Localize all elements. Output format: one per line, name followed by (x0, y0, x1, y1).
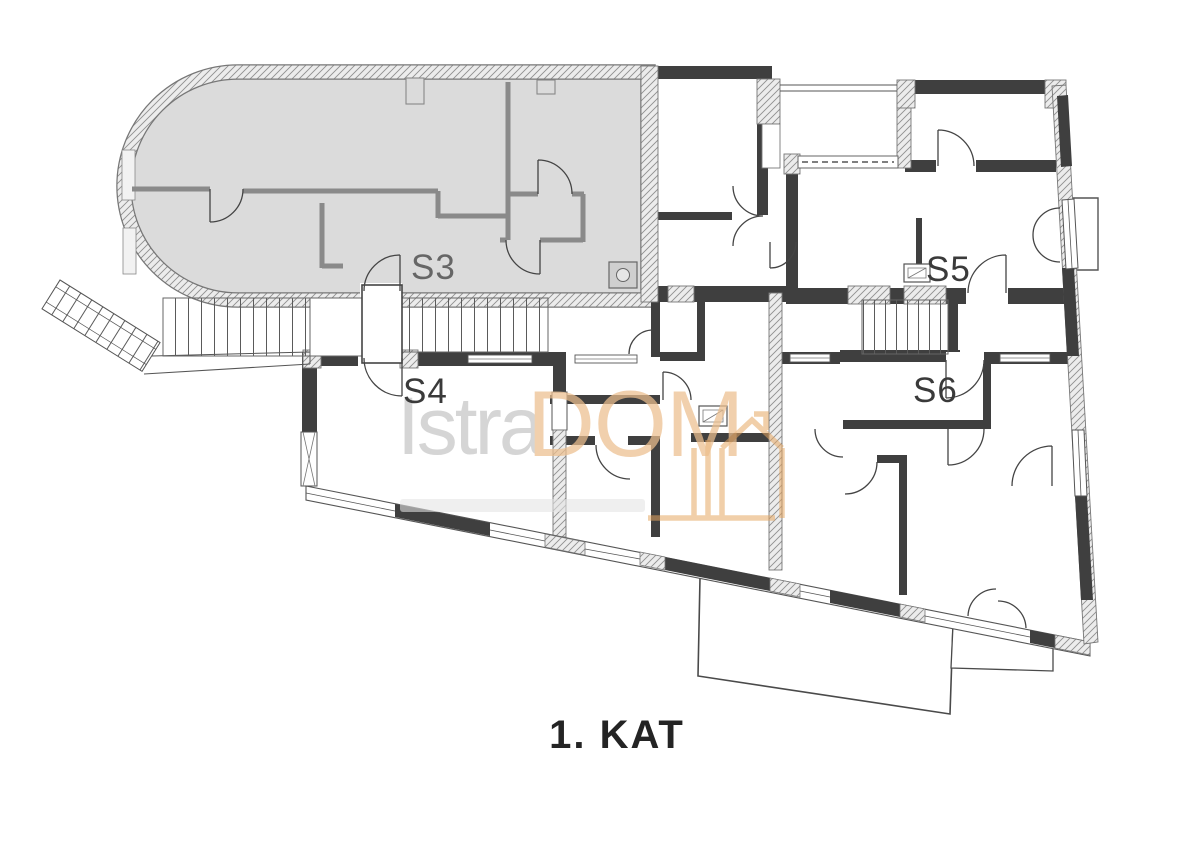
unit-label-s3: S3 (411, 248, 456, 287)
unit-s3-region (122, 72, 648, 300)
wall-niche (406, 78, 424, 104)
party-wall (641, 66, 658, 302)
stair-interior-flight (862, 300, 948, 354)
window (122, 150, 135, 200)
watermark-tagline-blur (400, 499, 645, 512)
unit-label-s4: S4 (403, 372, 448, 411)
floor-plan-svg: Istra DOM S3 S4 S5 S6 1. KAT (0, 0, 1200, 849)
door-opening (966, 288, 1008, 304)
party-wall (769, 293, 782, 570)
floor-title: 1. KAT (549, 713, 685, 757)
wall-pier (897, 80, 915, 108)
stair-corridor-flight (163, 298, 310, 356)
east-facade-wall (1052, 85, 1098, 644)
unit-label-s6: S6 (913, 371, 958, 410)
wall-pier (668, 286, 694, 302)
shaft (762, 124, 780, 168)
floor-plan-page: Istra DOM S3 S4 S5 S6 1. KAT (0, 0, 1200, 849)
unit-s3-floor-fill (124, 72, 648, 300)
door-opening (936, 160, 976, 172)
shaft (757, 79, 780, 124)
stair-corridor-flight (402, 298, 548, 352)
unit-label-s5: S5 (926, 250, 971, 289)
stair-left-exterior-flight (42, 280, 160, 371)
watermark-brand-secondary: DOM (527, 371, 743, 476)
window (123, 228, 136, 274)
entry-vestibule (362, 285, 402, 363)
terraces (698, 578, 1053, 714)
watermark: Istra DOM (397, 371, 782, 518)
drain (617, 269, 630, 282)
wall-niche (537, 80, 555, 94)
door-opening (946, 352, 984, 364)
loggia (780, 85, 898, 168)
